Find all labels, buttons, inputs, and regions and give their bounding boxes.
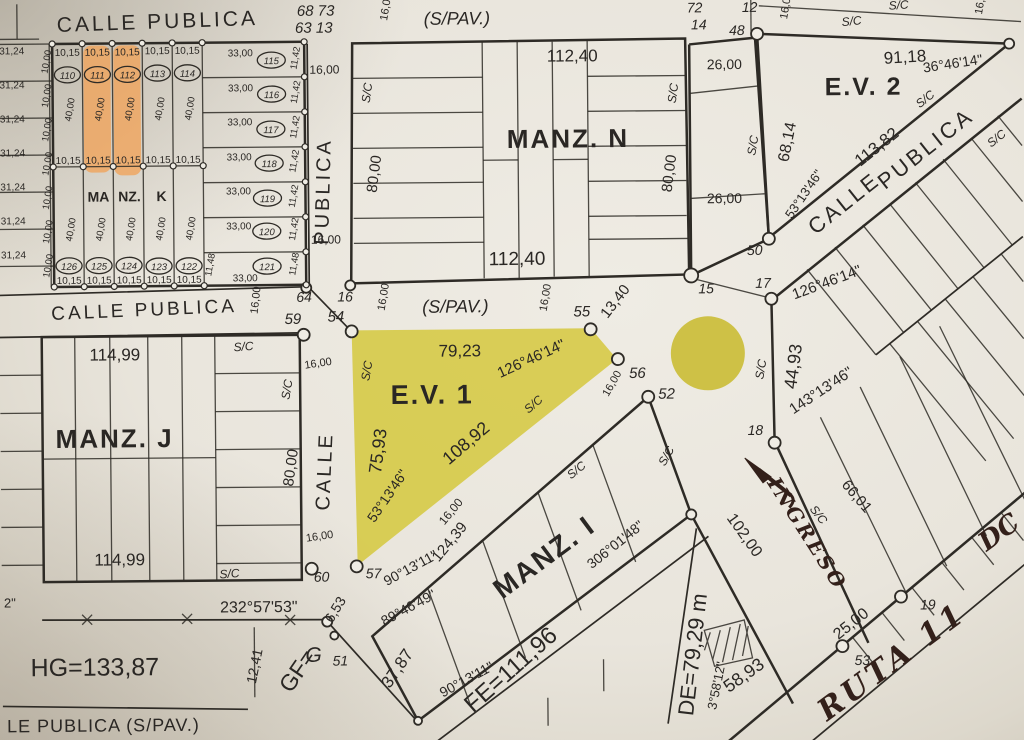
angle-232: 232°57'53" bbox=[220, 599, 298, 617]
svg-text:33,00: 33,00 bbox=[226, 221, 252, 232]
street-calle-publica-bottom: LE PUBLICA (S/PAV.) bbox=[7, 715, 200, 737]
svg-text:52: 52 bbox=[658, 386, 675, 403]
svg-text:31,24: 31,24 bbox=[0, 46, 25, 57]
svg-text:17: 17 bbox=[755, 275, 772, 291]
svg-text:10,15: 10,15 bbox=[116, 155, 142, 166]
manz-j-bottom-length: 114,99 bbox=[94, 550, 145, 569]
svg-text:125: 125 bbox=[91, 262, 108, 273]
manz-n-bottom-length: 112,40 bbox=[489, 249, 546, 270]
cadastral-map-scan: CALLE PUBLICA (S/PAV.) CALLE PUBLICA PUB… bbox=[0, 0, 1024, 740]
survey-plat: CALLE PUBLICA (S/PAV.) CALLE PUBLICA PUB… bbox=[0, 0, 1024, 740]
svg-text:122: 122 bbox=[181, 262, 198, 273]
svg-text:16,00: 16,00 bbox=[309, 62, 339, 76]
svg-text:31,24: 31,24 bbox=[1, 250, 27, 261]
svg-text:15: 15 bbox=[698, 280, 714, 296]
svg-text:33,00: 33,00 bbox=[227, 117, 253, 128]
svg-text:10,15: 10,15 bbox=[146, 155, 172, 166]
svg-text:56: 56 bbox=[629, 365, 646, 382]
street-calle-vertical: CALLE bbox=[312, 432, 337, 511]
street-spav-top: (S/PAV.) bbox=[424, 8, 491, 29]
ev1-top-length: 79,23 bbox=[438, 341, 481, 360]
svg-text:123: 123 bbox=[151, 262, 168, 273]
svg-text:59: 59 bbox=[284, 311, 301, 328]
svg-text:126: 126 bbox=[61, 262, 78, 273]
svg-text:31,24: 31,24 bbox=[0, 114, 25, 125]
manz-n-sc-right: S/C bbox=[665, 82, 682, 104]
svg-text:54: 54 bbox=[327, 308, 344, 325]
svg-text:10,15: 10,15 bbox=[117, 275, 143, 286]
svg-text:10,15: 10,15 bbox=[55, 48, 81, 59]
svg-text:10,15: 10,15 bbox=[85, 47, 111, 58]
svg-text:10,15: 10,15 bbox=[115, 47, 141, 58]
svg-text:18: 18 bbox=[747, 422, 763, 438]
dim-hg: HG=133,87 bbox=[30, 653, 159, 682]
svg-text:53: 53 bbox=[854, 652, 870, 668]
svg-text:10,15: 10,15 bbox=[87, 275, 113, 286]
svg-text:10,15: 10,15 bbox=[175, 46, 201, 57]
manz-n-top-length: 112,40 bbox=[547, 46, 598, 65]
svg-text:14: 14 bbox=[691, 16, 707, 32]
svg-text:117: 117 bbox=[263, 125, 279, 136]
manz-n-sc-left: S/C bbox=[359, 82, 376, 104]
svg-text:10,15: 10,15 bbox=[86, 155, 112, 166]
svg-text:57: 57 bbox=[366, 565, 383, 581]
svg-text:19: 19 bbox=[920, 596, 936, 612]
svg-text:16,00: 16,00 bbox=[311, 232, 341, 246]
ev2-top-length: 91,18 bbox=[883, 46, 927, 68]
manz-k-label-3: K bbox=[156, 188, 166, 204]
svg-text:31,24: 31,24 bbox=[0, 80, 25, 91]
ev2-label: E.V. 2 bbox=[825, 73, 903, 102]
svg-text:33,00: 33,00 bbox=[226, 186, 252, 197]
svg-text:111: 111 bbox=[90, 71, 105, 82]
svg-text:31,24: 31,24 bbox=[0, 182, 26, 193]
svg-text:124: 124 bbox=[121, 261, 137, 272]
svg-text:121: 121 bbox=[259, 262, 275, 273]
svg-text:16: 16 bbox=[337, 288, 353, 304]
manz-n-label: MANZ. N bbox=[507, 123, 630, 154]
svg-text:10,15: 10,15 bbox=[147, 275, 173, 286]
manz-j-sc-top: S/C bbox=[233, 339, 254, 355]
svg-text:10,15: 10,15 bbox=[177, 275, 203, 286]
street-publica-vertical: PUBLICA bbox=[311, 138, 336, 245]
svg-text:33,00: 33,00 bbox=[227, 152, 253, 163]
svg-text:10,15: 10,15 bbox=[56, 156, 82, 167]
ev1-label: E.V. 1 bbox=[391, 379, 474, 410]
block-ne-bottom: 26,00 bbox=[707, 190, 742, 206]
svg-text:S/C: S/C bbox=[841, 13, 863, 29]
svg-text:31,24: 31,24 bbox=[1, 216, 27, 227]
vertex-pair-63-13: 63 13 bbox=[295, 20, 333, 37]
block-ne-top: 26,00 bbox=[707, 56, 742, 72]
manz-k-label-1: MA bbox=[88, 189, 110, 205]
svg-text:33,00: 33,00 bbox=[228, 48, 254, 59]
svg-text:110: 110 bbox=[60, 71, 76, 82]
svg-text:114: 114 bbox=[180, 69, 195, 80]
svg-text:120: 120 bbox=[259, 227, 276, 238]
svg-text:10,15: 10,15 bbox=[57, 276, 83, 287]
svg-text:113: 113 bbox=[150, 69, 166, 80]
highlight-circle-roundabout bbox=[671, 316, 746, 391]
svg-text:72: 72 bbox=[687, 0, 703, 15]
svg-text:10,15: 10,15 bbox=[176, 155, 202, 166]
manz-j-label: MANZ. J bbox=[55, 423, 173, 454]
svg-text:116: 116 bbox=[264, 90, 280, 101]
svg-text:31,24: 31,24 bbox=[0, 148, 26, 159]
svg-text:55: 55 bbox=[573, 303, 590, 320]
svg-text:12: 12 bbox=[742, 0, 758, 15]
angle-partial-left: 2" bbox=[4, 595, 16, 610]
svg-text:115: 115 bbox=[264, 56, 280, 67]
manz-k-label-2: NZ. bbox=[118, 188, 141, 204]
svg-text:51: 51 bbox=[332, 652, 348, 668]
svg-text:10,15: 10,15 bbox=[145, 46, 171, 57]
svg-text:33,00: 33,00 bbox=[233, 273, 259, 284]
svg-text:48: 48 bbox=[729, 22, 745, 38]
manz-j-sc-bottom: S/C bbox=[219, 566, 240, 582]
svg-text:112: 112 bbox=[120, 70, 136, 81]
vertex-pair-68-73: 68 73 bbox=[297, 3, 335, 20]
svg-text:33,00: 33,00 bbox=[228, 83, 254, 94]
svg-text:S/C: S/C bbox=[888, 0, 909, 13]
manz-j-top-length: 114,99 bbox=[89, 345, 140, 364]
svg-text:50: 50 bbox=[747, 242, 763, 258]
svg-text:119: 119 bbox=[260, 194, 276, 205]
svg-text:118: 118 bbox=[262, 159, 278, 170]
street-spav-mid: (S/PAV.) bbox=[422, 296, 489, 317]
svg-text:64: 64 bbox=[296, 289, 312, 305]
svg-text:60: 60 bbox=[314, 569, 330, 585]
